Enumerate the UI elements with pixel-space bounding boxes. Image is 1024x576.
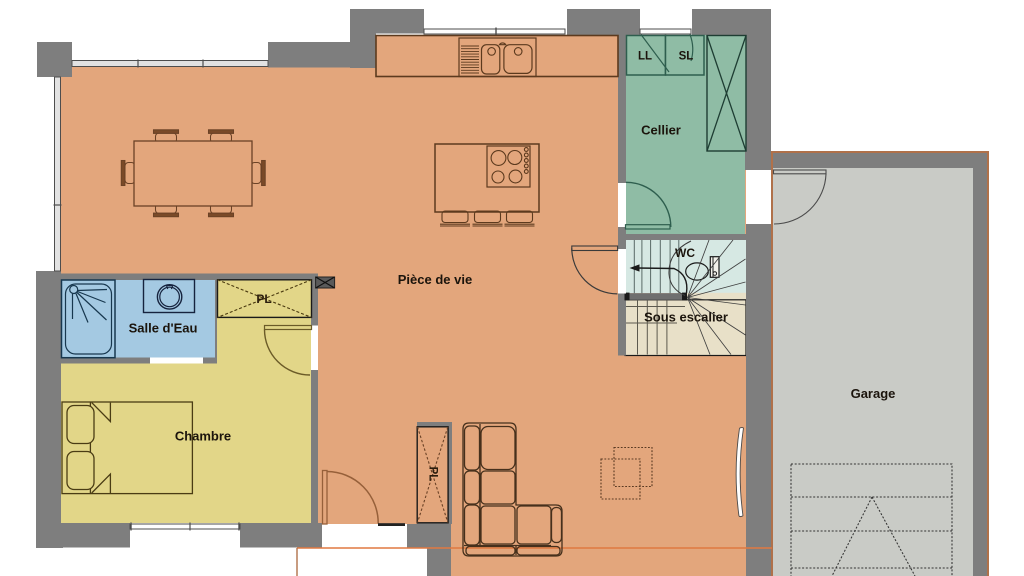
svg-text:Garage: Garage bbox=[851, 386, 896, 401]
svg-text:PL: PL bbox=[426, 467, 438, 482]
svg-text:Pièce de vie: Pièce de vie bbox=[398, 272, 472, 287]
svg-text:Chambre: Chambre bbox=[175, 429, 231, 444]
svg-text:PL: PL bbox=[256, 292, 271, 306]
svg-text:WC: WC bbox=[675, 246, 695, 260]
svg-text:Sous escalier: Sous escalier bbox=[644, 310, 728, 325]
svg-text:LL: LL bbox=[638, 51, 652, 63]
svg-text:SL: SL bbox=[679, 51, 694, 63]
svg-text:Cellier: Cellier bbox=[641, 123, 681, 138]
svg-text:Salle d'Eau: Salle d'Eau bbox=[129, 321, 198, 336]
